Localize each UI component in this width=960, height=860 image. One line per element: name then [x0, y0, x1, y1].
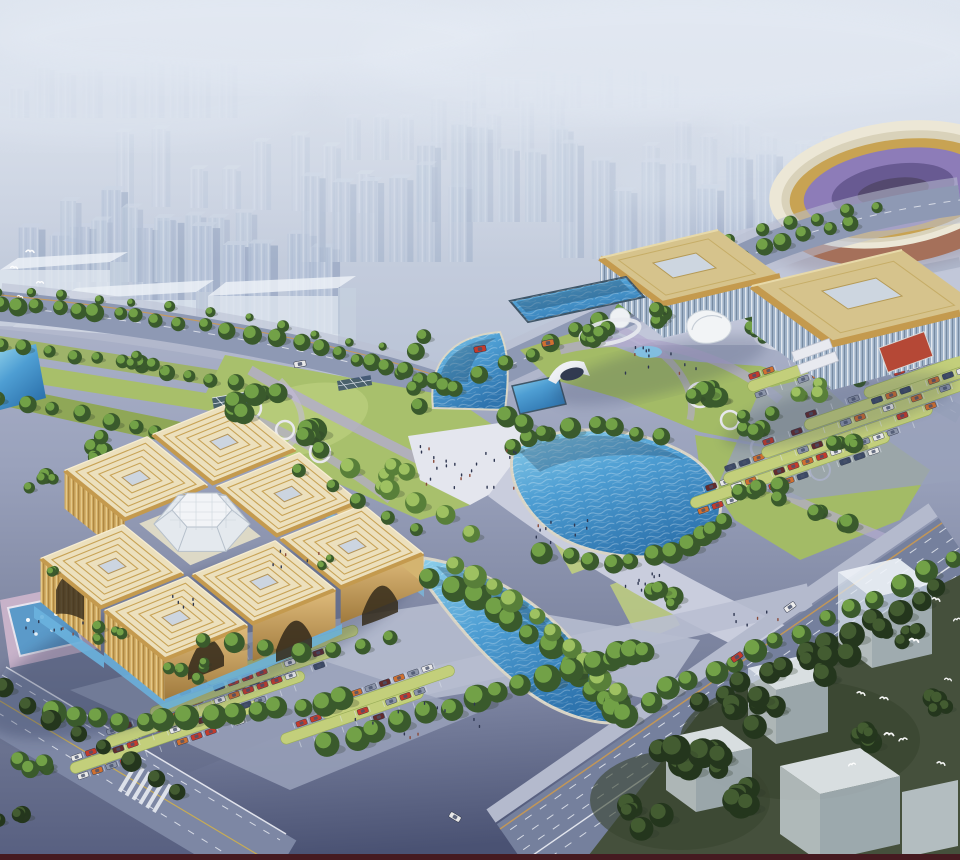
person [420, 445, 421, 448]
person [643, 346, 644, 349]
cloud [320, 55, 720, 135]
person [355, 718, 356, 721]
person [72, 633, 73, 636]
person [372, 722, 373, 725]
person [638, 579, 639, 582]
person [635, 346, 636, 349]
person [426, 483, 427, 486]
person [733, 613, 734, 616]
person [777, 618, 778, 621]
person [437, 706, 438, 709]
person [460, 477, 461, 480]
person [587, 519, 588, 522]
person [172, 595, 173, 598]
person [454, 463, 455, 466]
person [538, 524, 539, 527]
person [446, 464, 447, 467]
aerial-masterplan-rendering: Aerial rendering of a civic exhibition c… [0, 0, 960, 860]
person [474, 702, 475, 705]
person [409, 736, 410, 739]
person [444, 709, 445, 712]
person [192, 598, 193, 601]
person [454, 486, 455, 489]
person [494, 459, 495, 462]
person [398, 710, 399, 713]
person [485, 452, 486, 455]
person [38, 620, 39, 623]
person [641, 589, 642, 592]
person [445, 460, 446, 463]
person [513, 487, 514, 490]
person [648, 349, 649, 352]
person [659, 574, 660, 577]
person [648, 365, 649, 368]
person [509, 456, 510, 459]
person [679, 372, 680, 375]
person [493, 486, 494, 489]
person [575, 533, 576, 536]
person [652, 572, 653, 575]
person [550, 541, 551, 544]
person [307, 559, 308, 562]
person [746, 623, 747, 626]
bottom-strip [0, 854, 960, 860]
person [479, 725, 480, 728]
person [436, 467, 437, 470]
person [766, 611, 767, 614]
person [280, 550, 281, 553]
person [513, 450, 514, 453]
person [417, 733, 418, 736]
person [285, 553, 286, 556]
person [183, 606, 184, 609]
person [281, 565, 282, 568]
person [461, 473, 462, 476]
person [574, 524, 575, 527]
person [193, 603, 194, 606]
person [625, 371, 626, 374]
person [536, 536, 537, 539]
person [545, 527, 546, 530]
person [433, 456, 434, 459]
person [25, 626, 26, 629]
person [515, 452, 516, 455]
person [645, 582, 646, 585]
person [586, 527, 587, 530]
fountain-jet [26, 618, 30, 622]
person [428, 447, 429, 450]
person [634, 353, 635, 356]
fountain-jet [34, 632, 38, 636]
person [471, 469, 472, 472]
person [433, 460, 434, 463]
person [62, 627, 63, 630]
person [54, 629, 55, 632]
person [646, 349, 647, 352]
person [469, 474, 470, 477]
person [648, 354, 649, 357]
person [178, 601, 179, 604]
person [61, 628, 62, 631]
glass-slab-building [780, 748, 900, 860]
rendering-canvas: Aerial rendering of a civic exhibition c… [0, 0, 960, 860]
person [757, 617, 758, 620]
person [506, 449, 507, 452]
person [318, 552, 319, 555]
person [735, 620, 736, 623]
person [550, 521, 551, 524]
person [486, 486, 487, 489]
person [539, 529, 540, 532]
glass-slab-building [902, 780, 958, 858]
person [653, 575, 654, 578]
person [421, 450, 422, 453]
person [476, 462, 477, 465]
person [33, 630, 34, 633]
person [82, 621, 83, 624]
person [473, 718, 474, 721]
person [637, 582, 638, 585]
plaza-pond [634, 346, 662, 358]
person [625, 585, 626, 588]
person [272, 563, 273, 566]
person [670, 352, 671, 355]
person [424, 702, 425, 705]
person [695, 367, 696, 370]
person [404, 732, 405, 735]
person [430, 478, 431, 481]
person [684, 363, 685, 366]
